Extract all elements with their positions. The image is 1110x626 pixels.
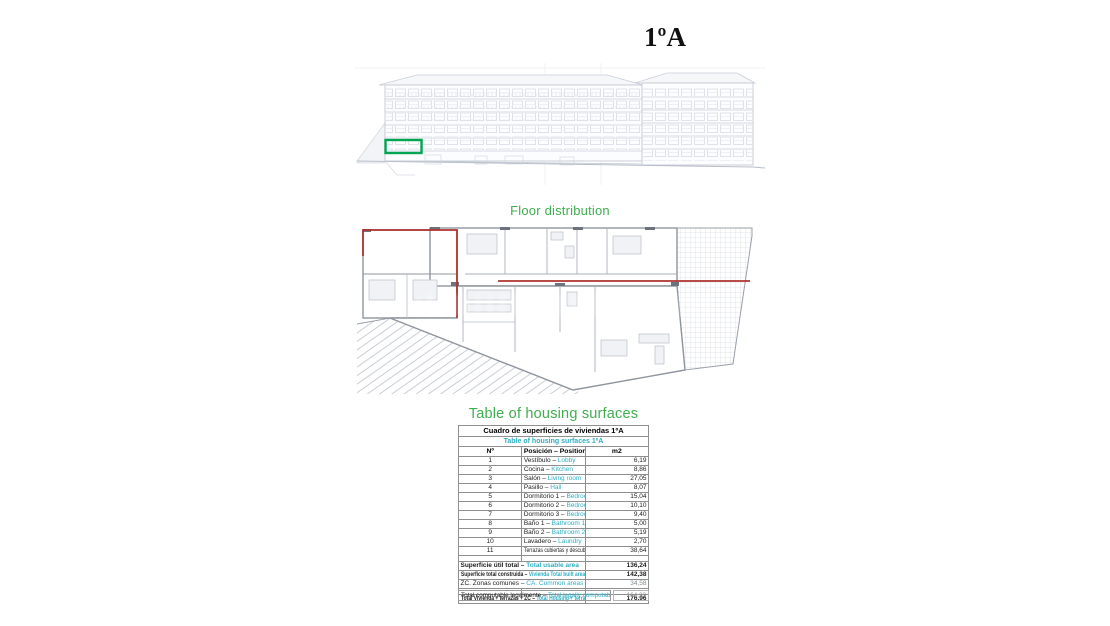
legal-total-label: Total computable legalmente – Total lega… [458, 590, 611, 601]
label-es: Terrazas cubiertas y descubiertas – [524, 547, 585, 554]
apartment-title: 1ºA [600, 22, 730, 53]
row-number: 11 [459, 547, 522, 556]
label-es: Superficie útil total – [461, 562, 527, 569]
table-title-row: Cuadro de superficies de viviendas 1ºA [459, 426, 649, 437]
table-title-es: Cuadro de superficies de viviendas 1ºA [459, 426, 649, 437]
row-m2: 5,19 [585, 529, 648, 538]
table-row: 11Terrazas cubiertas y descubiertas – Co… [459, 547, 649, 556]
table-row: 3Salón – Living room27,05 [459, 475, 649, 484]
label-en: Living room [548, 475, 582, 482]
label-es: Salón – [524, 475, 548, 482]
table-subtitle-row: Table of housing surfaces 1ºA [459, 437, 649, 447]
label-en: Bathroom 1 [552, 520, 586, 527]
table-row: 4Pasillo – Hall8,07 [459, 484, 649, 493]
total-row: ZC. Zonas comunes – CA. Common areas34,5… [459, 580, 649, 589]
label-en: Kitchen [551, 466, 573, 473]
label-es: Lavadero – [524, 538, 558, 545]
row-m2: 9,40 [585, 511, 648, 520]
row-number: 5 [459, 493, 522, 502]
row-position: Baño 2 – Bathroom 2 [522, 529, 585, 538]
row-m2: 5,00 [585, 520, 648, 529]
table-row: 6Dormitorio 2 – Bedroom 210,10 [459, 502, 649, 511]
column-header-row: Nº Posición – Position m2 [459, 447, 649, 457]
row-position: Terrazas cubiertas y descubiertas – Cove… [522, 547, 585, 556]
col-header-num: Nº [459, 447, 522, 457]
row-m2: 8,07 [585, 484, 648, 493]
row-position: Dormitorio 1 – Bedroom 1 [522, 493, 585, 502]
row-number: 9 [459, 529, 522, 538]
total-m2: 136,24 [585, 562, 648, 571]
label-es: Cocina – [524, 466, 551, 473]
floor-distribution-heading: Floor distribution [355, 203, 765, 218]
row-m2: 10,10 [585, 502, 648, 511]
label-en: Bathroom 2 [552, 529, 586, 536]
col-header-position: Posición – Position [522, 447, 585, 457]
row-m2: 2,70 [585, 538, 648, 547]
row-position: Baño 1 – Bathroom 1 [522, 520, 585, 529]
label-en: Hall [550, 484, 561, 491]
row-m2: 27,05 [585, 475, 648, 484]
legal-label-en: Total legally computable [548, 592, 611, 599]
table-row: 5Dormitorio 1 – Bedroom 115,04 [459, 493, 649, 502]
row-position: Salón – Living room [522, 475, 585, 484]
label-en: Vivienda Total built area - Housing [528, 571, 585, 578]
floor-plan-drawing [355, 222, 765, 394]
label-en: Bedroom 3 [566, 511, 585, 518]
label-en: Total usable area [526, 562, 579, 569]
row-position: Dormitorio 2 – Bedroom 2 [522, 502, 585, 511]
building-elevation [355, 63, 765, 185]
total-label: Superficie total construida – Vivienda T… [459, 571, 586, 580]
row-m2: 38,64 [585, 547, 648, 556]
table-row: 9Baño 2 – Bathroom 25,19 [459, 529, 649, 538]
label-es: Vestíbulo – [524, 457, 558, 464]
legal-label-es: Total computable legalmente – [461, 592, 548, 599]
label-es: Dormitorio 3 – [524, 511, 567, 518]
elevation-drawing [355, 63, 765, 185]
label-en: Lobby [558, 457, 576, 464]
label-en: Bedroom 1 [566, 493, 585, 500]
row-m2: 6,19 [585, 457, 648, 466]
label-es: Dormitorio 2 – [524, 502, 567, 509]
table-title-en: Table of housing surfaces 1ºA [459, 437, 649, 447]
label-es: Baño 1 – [524, 520, 552, 527]
row-position: Lavadero – Laundry [522, 538, 585, 547]
row-position: Pasillo – Hall [522, 484, 585, 493]
total-row: Superficie total construida – Vivienda T… [459, 571, 649, 580]
row-position: Vestíbulo – Lobby [522, 457, 585, 466]
label-es: Baño 2 – [524, 529, 552, 536]
row-m2: 15,04 [585, 493, 648, 502]
surfaces-table-body: Cuadro de superficies de viviendas 1ºA T… [459, 426, 649, 604]
table-row: 2Cocina – Kitchen8,86 [459, 466, 649, 475]
row-position: Dormitorio 3 – Bedroom 3 [522, 511, 585, 520]
total-label: ZC. Zonas comunes – CA. Common areas [459, 580, 586, 589]
table-row: 1Vestíbulo – Lobby6,19 [459, 457, 649, 466]
row-number: 7 [459, 511, 522, 520]
col-header-m2: m2 [585, 447, 648, 457]
table-row: 7Dormitorio 3 – Bedroom 39,40 [459, 511, 649, 520]
label-es: Superficie total construida – [461, 571, 529, 578]
row-number: 4 [459, 484, 522, 493]
row-number: 6 [459, 502, 522, 511]
label-en: Bedroom 2 [566, 502, 585, 509]
label-es: Dormitorio 1 – [524, 493, 567, 500]
legal-total-row: Total computable legalmente – Total lega… [458, 590, 649, 601]
total-label: Superficie útil total – Total usable are… [459, 562, 586, 571]
total-row: Superficie útil total – Total usable are… [459, 562, 649, 571]
label-es: Pasillo – [524, 484, 550, 491]
surfaces-heading: Table of housing surfaces [458, 406, 649, 422]
total-m2: 34,58 [585, 580, 648, 589]
label-en: CA. Common areas [526, 580, 583, 587]
floor-plan [355, 222, 765, 394]
total-m2: 142,38 [585, 571, 648, 580]
page: 1ºA [0, 0, 1110, 626]
label-es: ZC. Zonas comunes – [461, 580, 527, 587]
terrace-right [677, 228, 752, 370]
row-number: 8 [459, 520, 522, 529]
table-row: 8Baño 1 – Bathroom 15,00 [459, 520, 649, 529]
label-en: Laundry [558, 538, 582, 545]
row-number: 1 [459, 457, 522, 466]
table-row: 10Lavadero – Laundry2,70 [459, 538, 649, 547]
row-number: 2 [459, 466, 522, 475]
row-number: 3 [459, 475, 522, 484]
row-position: Cocina – Kitchen [522, 466, 585, 475]
legal-total-value: 164,33 [613, 590, 649, 601]
surfaces-table: Cuadro de superficies de viviendas 1ºA T… [458, 425, 649, 604]
row-m2: 8,86 [585, 466, 648, 475]
hill-slope [357, 123, 385, 163]
row-number: 10 [459, 538, 522, 547]
